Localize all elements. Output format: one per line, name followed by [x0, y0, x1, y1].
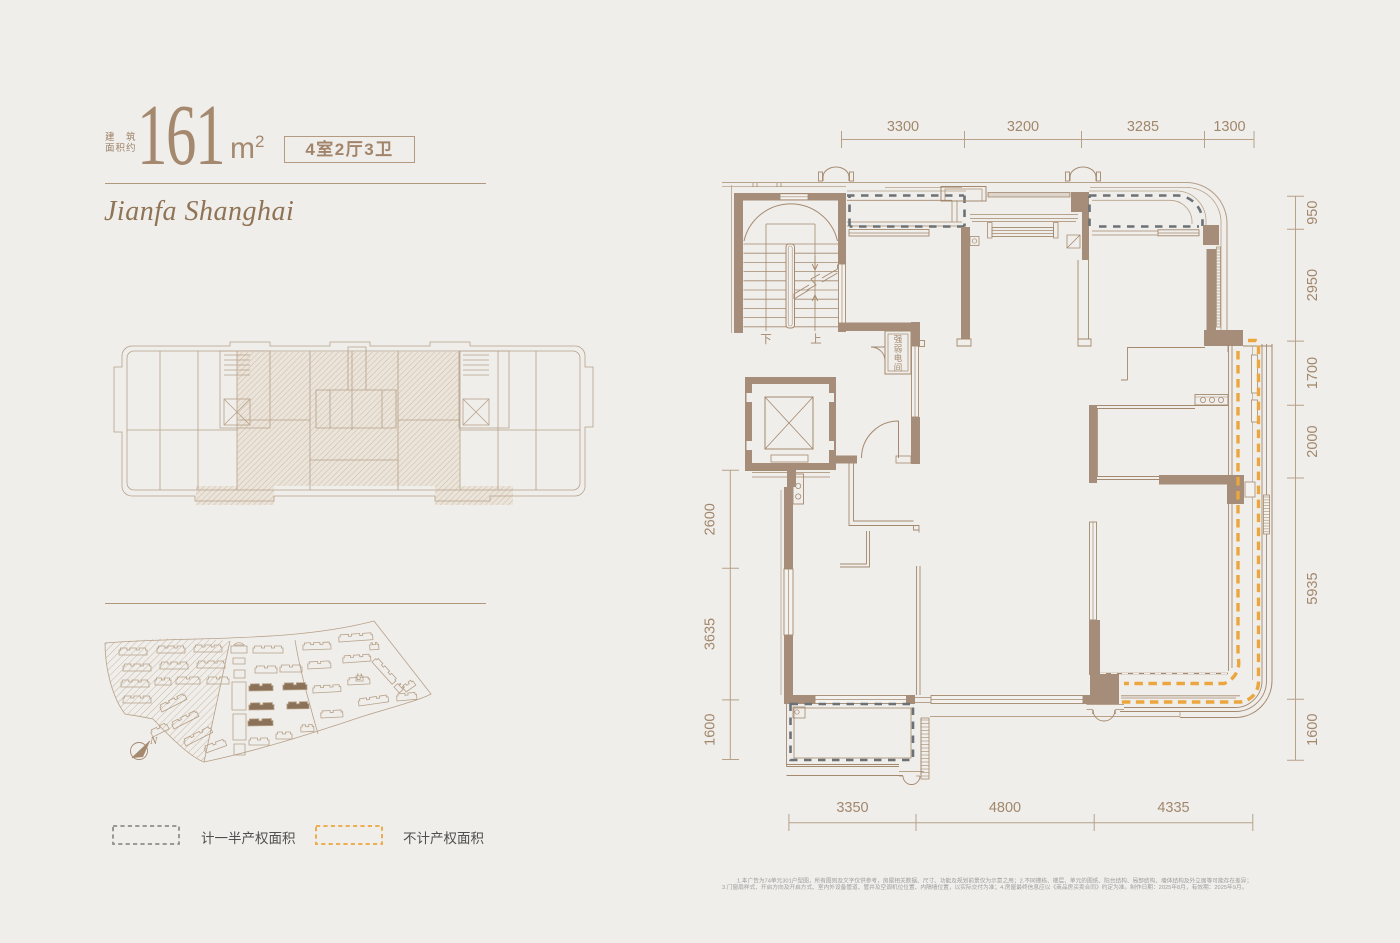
svg-text:1700: 1700 [1305, 357, 1321, 389]
svg-text:4800: 4800 [989, 800, 1021, 816]
svg-text:3300: 3300 [887, 119, 919, 135]
svg-text:4335: 4335 [1157, 800, 1189, 816]
svg-text:强: 强 [894, 334, 903, 344]
svg-text:3200: 3200 [1007, 119, 1039, 135]
svg-text:间: 间 [894, 363, 903, 373]
svg-text:上: 上 [810, 333, 822, 346]
svg-text:950: 950 [1305, 201, 1321, 225]
svg-text:2000: 2000 [1305, 425, 1321, 457]
svg-text:1300: 1300 [1213, 119, 1245, 135]
svg-text:1600: 1600 [703, 714, 719, 746]
svg-text:N: N [149, 735, 158, 747]
svg-text:下: 下 [760, 334, 772, 346]
svg-text:1600: 1600 [1305, 714, 1321, 746]
svg-text:2600: 2600 [703, 503, 719, 535]
svg-text:弱: 弱 [894, 344, 903, 354]
svg-text:3350: 3350 [836, 800, 868, 816]
svg-text:电: 电 [894, 353, 903, 363]
svg-text:2950: 2950 [1305, 269, 1321, 301]
svg-text:3635: 3635 [703, 618, 719, 650]
svg-text:5935: 5935 [1305, 572, 1321, 604]
svg-text:3285: 3285 [1127, 119, 1159, 135]
